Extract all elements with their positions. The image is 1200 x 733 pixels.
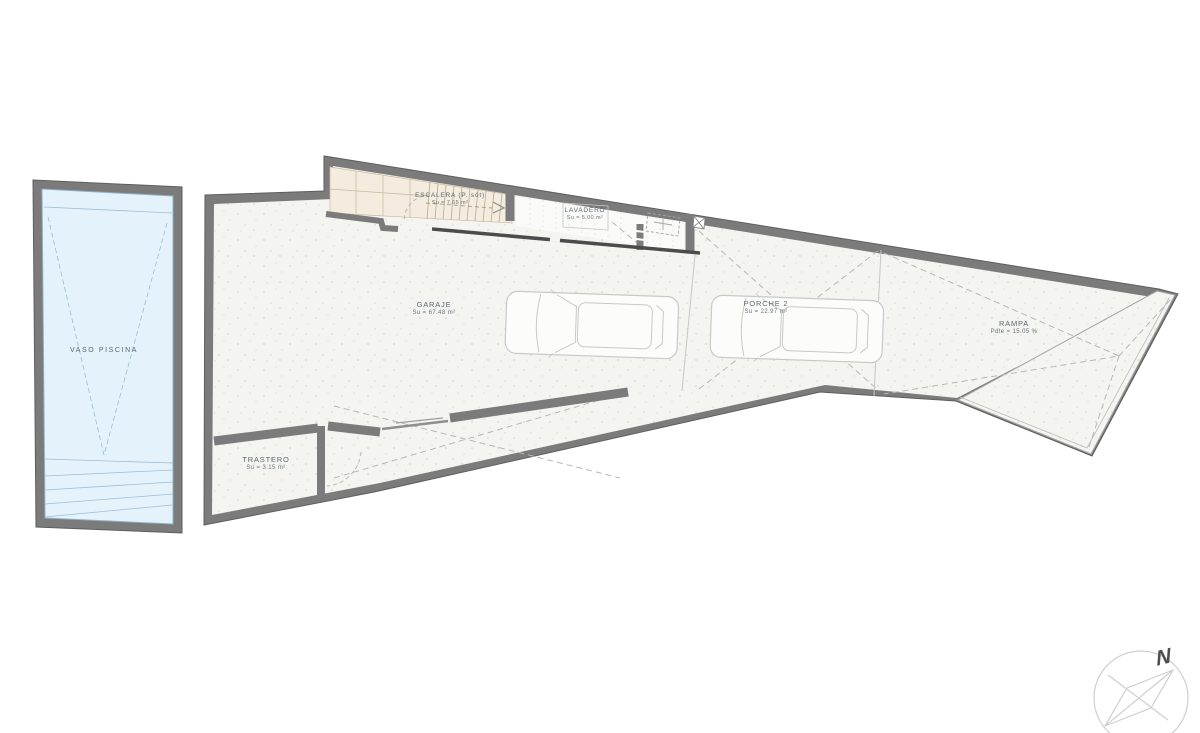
room-label-escalera: ESCALERA (P. sót) Su = 7.65 m² <box>415 192 485 206</box>
room-label-porche: PORCHE 2 Su = 22.97 m² <box>744 300 789 316</box>
lavadero-name: LAVADERO <box>565 207 606 214</box>
room-label-lavadero: LAVADERO Su = 5.00 m² <box>565 207 606 221</box>
room-label-trastero: TRASTERO Su = 3.15 m² <box>242 456 289 472</box>
trastero-area: Su = 3.15 m² <box>242 465 289 472</box>
garaje-area: Su = 67.48 m² <box>412 310 455 317</box>
room-label-garaje: GARAJE Su = 67.48 m² <box>412 301 455 317</box>
escalera-name: ESCALERA (P. sót) <box>415 192 485 199</box>
room-label-pool: VASO PISCINA <box>70 347 138 355</box>
north-label: N <box>1155 644 1172 672</box>
car-1 <box>505 288 679 362</box>
rampa-area: Pdte = 15.05 % <box>991 329 1038 336</box>
garaje-name: GARAJE <box>412 301 455 309</box>
pool <box>33 180 182 533</box>
lavadero-area: Su = 5.00 m² <box>565 215 606 221</box>
column-marker <box>693 216 705 229</box>
rampa-name: RAMPA <box>991 320 1038 328</box>
room-label-rampa: RAMPA Pdte = 15.05 % <box>991 320 1038 336</box>
porche-name: PORCHE 2 <box>744 300 789 308</box>
pool-name: VASO PISCINA <box>70 347 138 355</box>
escalera-area: Su = 7.65 m² <box>415 200 485 206</box>
car-2 <box>710 292 884 366</box>
floor-plan-page: VASO PISCINA ESCALERA (P. sót) Su = 7.65… <box>0 0 1200 733</box>
plan-svg <box>0 0 1200 733</box>
trastero-name: TRASTERO <box>242 456 289 464</box>
pool-water <box>42 189 173 524</box>
porche-area: Su = 22.97 m² <box>744 309 789 316</box>
compass-rose <box>1094 651 1188 733</box>
